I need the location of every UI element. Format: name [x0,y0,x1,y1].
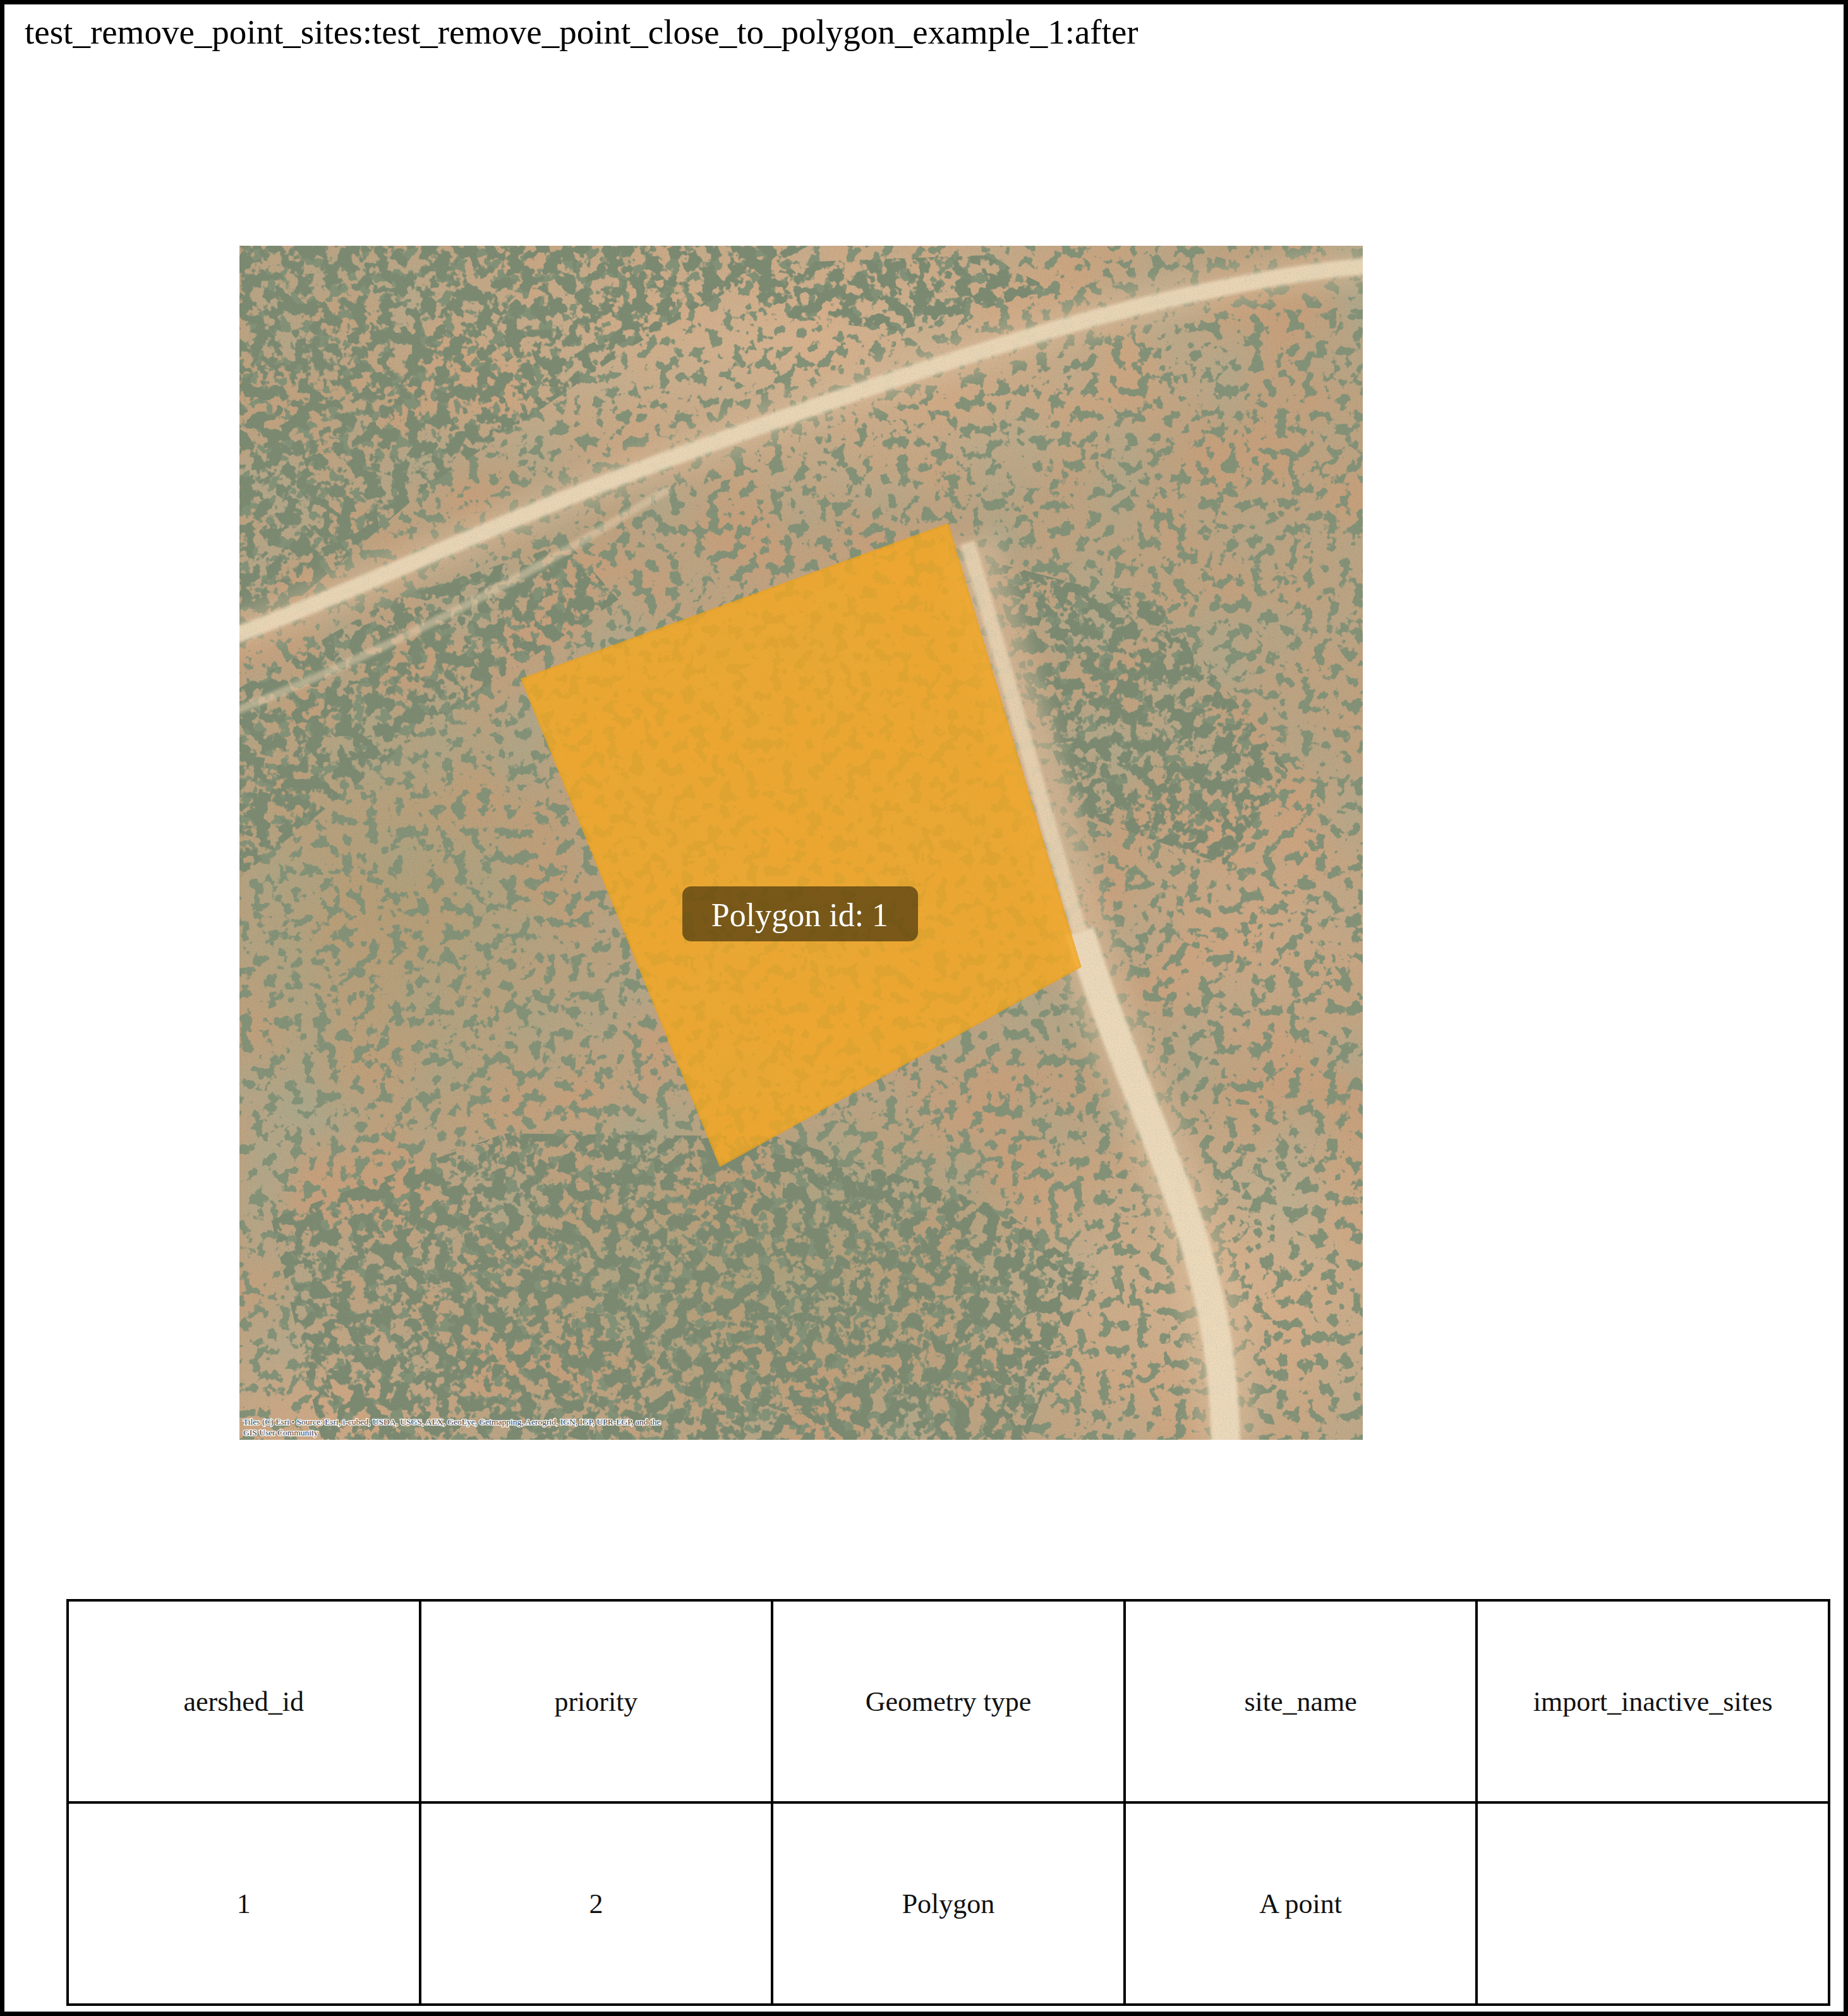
table-data-row: 1 2 Polygon A point [68,1802,1829,2005]
header-cell-priority: priority [420,1600,773,1802]
polygon-label: Polygon id: 1 [682,886,918,941]
satellite-map-canvas: Polygon id: 1 Tiles (C) Esri • Source: E… [239,246,1363,1440]
cell-site-name: A point [1125,1802,1477,2005]
cell-aershed-id: 1 [68,1802,420,2005]
attributes-table: aershed_id priority Geometry type site_n… [66,1599,1830,2006]
header-cell-geometry-type: Geometry type [772,1600,1125,1802]
polygon-label-text: Polygon id: 1 [711,897,888,933]
header-cell-aershed-id: aershed_id [68,1600,420,1802]
table-header-row: aershed_id priority Geometry type site_n… [68,1600,1829,1802]
cell-geometry-type: Polygon [772,1802,1125,2005]
header-cell-site-name: site_name [1125,1600,1477,1802]
page-title: test_remove_point_sites:test_remove_poin… [25,12,1138,52]
header-cell-import-inactive-sites: import_inactive_sites [1477,1600,1829,1802]
cell-priority: 2 [420,1802,773,2005]
test-report-page: test_remove_point_sites:test_remove_poin… [0,0,1848,2016]
attribution-line-2: GIS User Community [243,1428,318,1437]
satellite-map: Polygon id: 1 Tiles (C) Esri • Source: E… [239,246,1363,1440]
attribution-line-1: Tiles (C) Esri • Source: Esri, i-cubed, … [243,1417,660,1427]
cell-import-inactive-sites [1477,1802,1829,2005]
